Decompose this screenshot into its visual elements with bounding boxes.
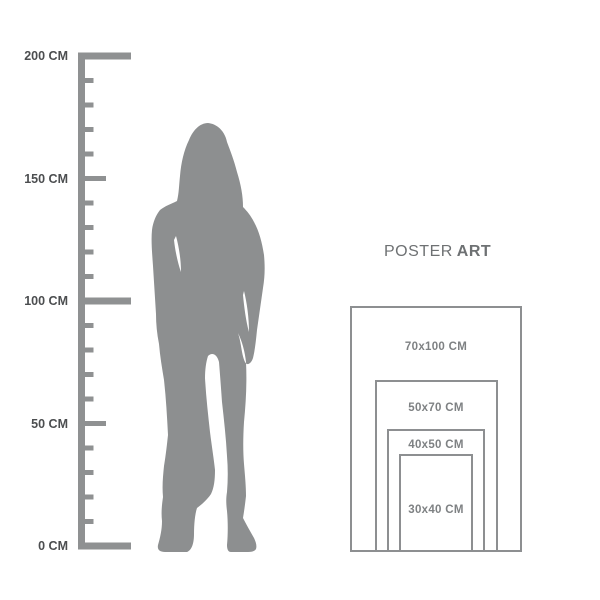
ruler-tick [78,543,131,550]
ruler-label: 100 CM [24,293,68,309]
brand-title-regular: POSTER [384,243,453,260]
ruler-tick [78,372,94,377]
ruler-tick [78,225,94,230]
ruler-label: 150 CM [24,171,68,187]
woman-silhouette-icon [152,123,265,552]
poster-size-label: 50x70 CM [366,401,506,415]
ruler [78,53,131,550]
ruler-tick [78,323,94,328]
ruler-tick [78,274,94,279]
ruler-tick [78,298,131,305]
ruler-tick [78,152,94,157]
ruler-tick [78,446,94,451]
ruler-label: 0 CM [38,538,68,554]
ruler-tick [78,127,94,132]
ruler-tick [78,397,94,402]
ruler-tick [78,470,94,475]
ruler-tick [78,53,131,60]
ruler-tick [78,519,94,524]
ruler-tick [78,348,94,353]
ruler-tick [78,250,94,255]
ruler-tick [78,201,94,206]
poster-size-label: 40x50 CM [366,438,506,452]
ruler-tick [78,495,94,500]
size-guide-infographic: 200 CM150 CM100 CM50 CM0 CM POSTERART 70… [0,0,600,600]
ruler-tick [78,176,106,181]
poster-size-label: 30x40 CM [366,503,506,517]
ruler-label: 200 CM [24,48,68,64]
ruler-label: 50 CM [31,416,68,432]
ruler-tick [78,78,94,83]
ruler-tick [78,103,94,108]
poster-size-label: 70x100 CM [366,340,506,354]
ruler-tick [78,421,106,426]
brand-title: POSTERART [384,243,491,261]
brand-title-bold: ART [457,243,491,260]
